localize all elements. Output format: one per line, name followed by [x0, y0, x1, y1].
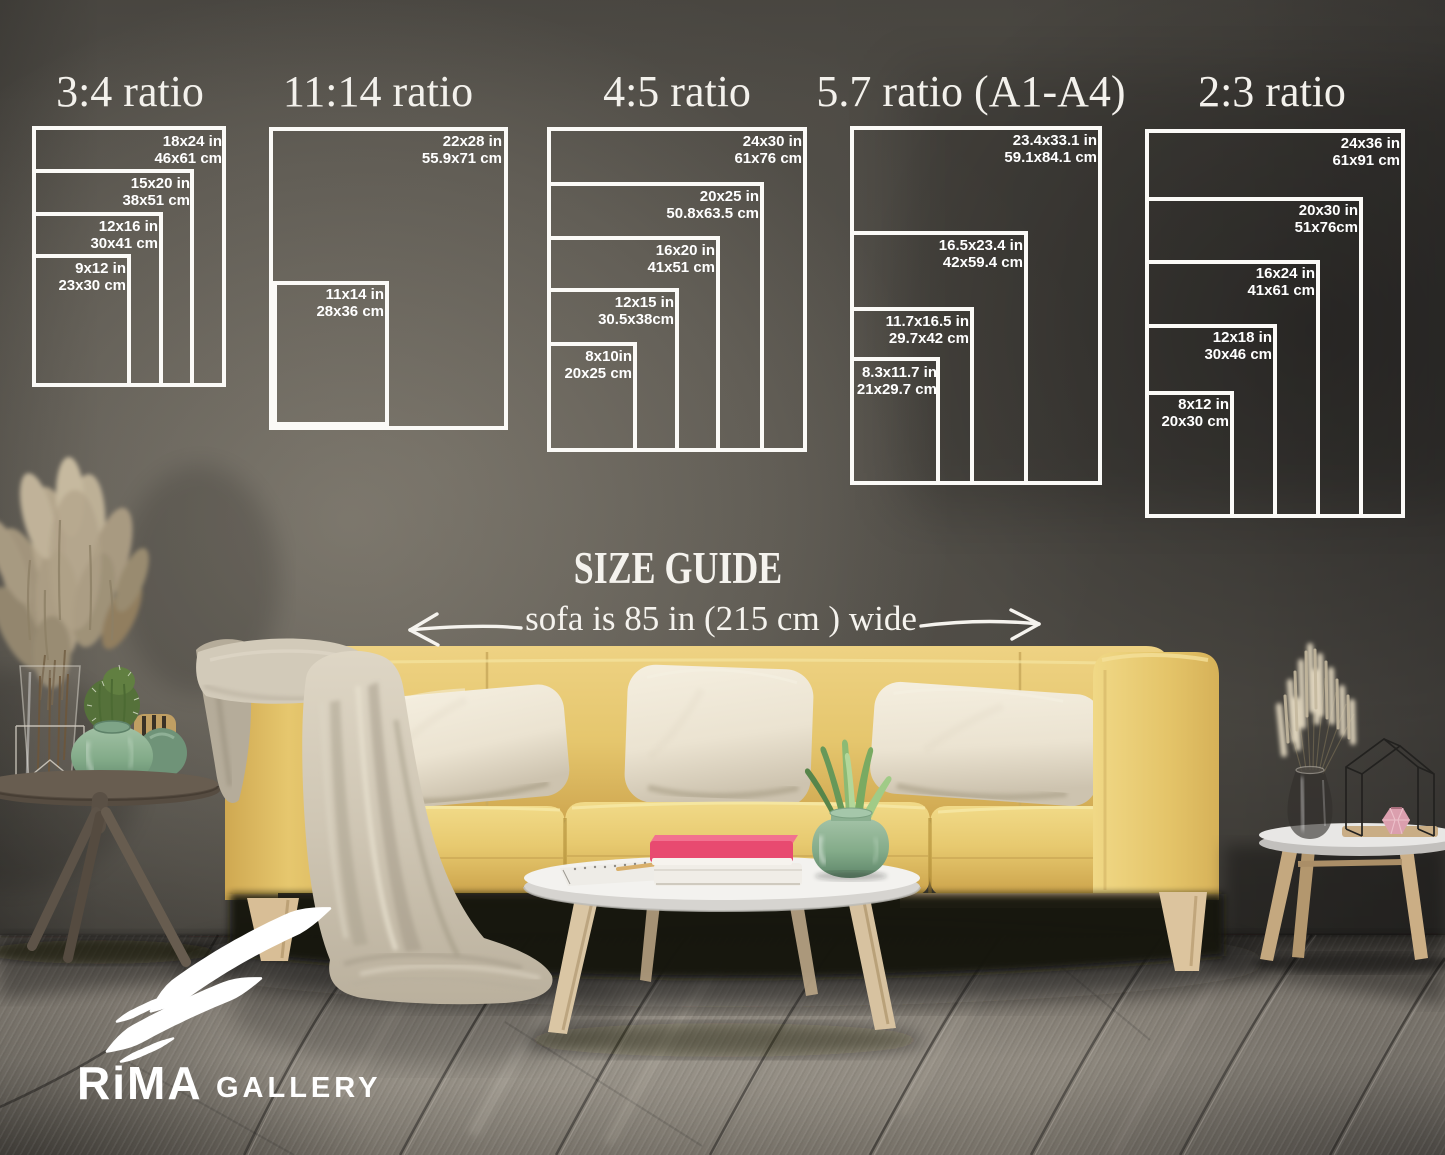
svg-text:GALLERY: GALLERY	[216, 1072, 381, 1104]
svg-text:RiMA: RiMA	[77, 1057, 203, 1109]
